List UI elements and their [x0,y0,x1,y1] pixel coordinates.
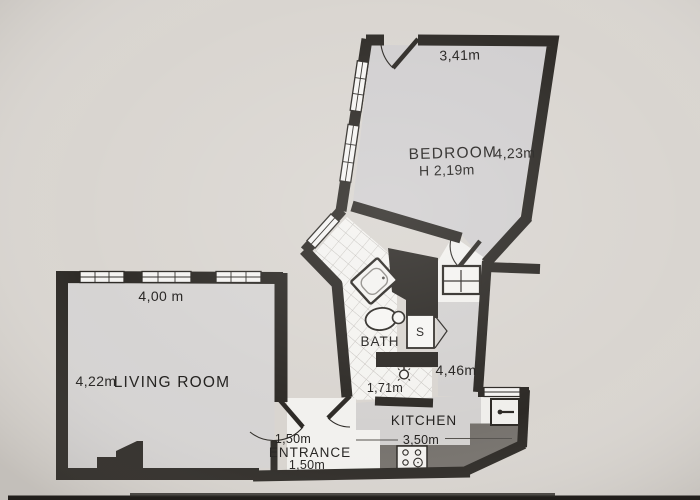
floor-plan-svg: 3,41m BEDROOM 4,23m H 2,19m 4,00 m 4,22m… [0,0,700,500]
photo-vignette [0,0,700,500]
photo-bottom-shadow [130,493,555,497]
floor-plan-photo: 3,41m BEDROOM 4,23m H 2,19m 4,00 m 4,22m… [0,0,700,500]
